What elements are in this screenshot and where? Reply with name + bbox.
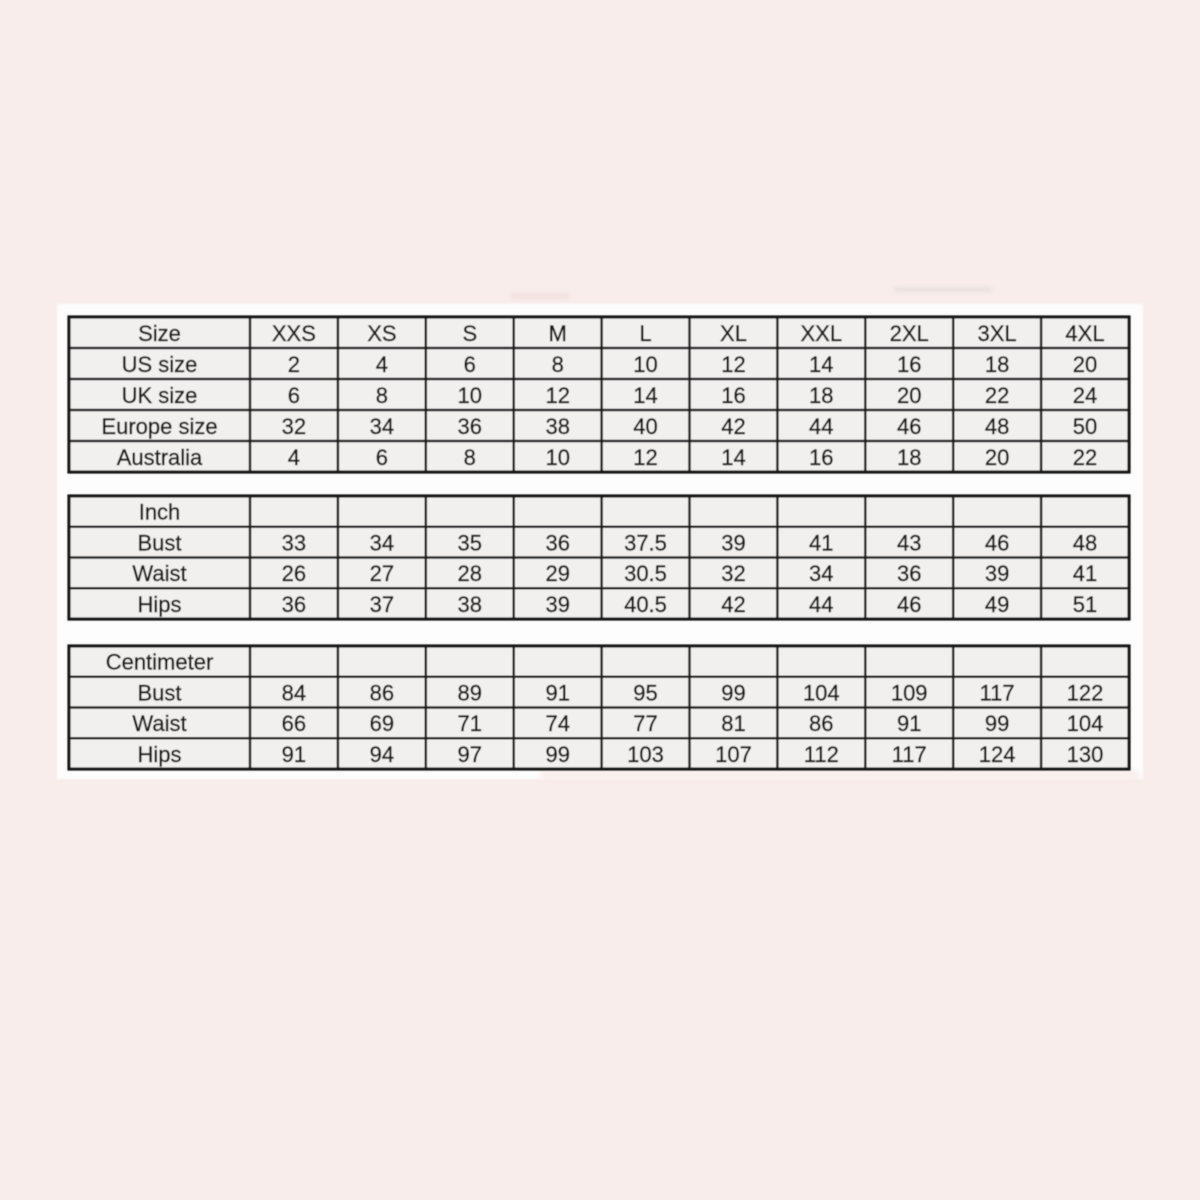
svg-text:86: 86 (370, 680, 394, 705)
svg-text:Inch: Inch (139, 500, 181, 525)
svg-text:48: 48 (1073, 530, 1097, 555)
svg-text:89: 89 (458, 680, 482, 705)
svg-text:12: 12 (721, 352, 745, 377)
svg-text:2XL: 2XL (890, 321, 929, 346)
svg-text:3XL: 3XL (978, 321, 1017, 346)
svg-text:86: 86 (809, 711, 833, 736)
svg-text:94: 94 (370, 742, 394, 767)
svg-text:112: 112 (804, 742, 839, 767)
svg-text:41: 41 (1073, 561, 1097, 586)
svg-text:18: 18 (809, 383, 833, 408)
svg-text:36: 36 (282, 592, 306, 617)
svg-text:124: 124 (979, 742, 1016, 767)
svg-text:34: 34 (809, 561, 833, 586)
svg-text:XXL: XXL (801, 321, 843, 346)
svg-text:S: S (462, 321, 477, 346)
svg-text:36: 36 (545, 530, 569, 555)
svg-text:24: 24 (1073, 383, 1097, 408)
svg-text:Centimeter: Centimeter (106, 650, 214, 675)
svg-text:71: 71 (458, 711, 482, 736)
svg-text:104: 104 (1067, 711, 1104, 736)
svg-text:14: 14 (809, 352, 833, 377)
svg-text:Hips: Hips (137, 592, 181, 617)
svg-text:109: 109 (891, 680, 928, 705)
svg-text:42: 42 (721, 592, 745, 617)
svg-text:38: 38 (545, 414, 569, 439)
svg-text:122: 122 (1067, 680, 1104, 705)
svg-text:40.5: 40.5 (624, 592, 667, 617)
svg-text:4XL: 4XL (1065, 321, 1104, 346)
svg-text:35: 35 (458, 530, 482, 555)
svg-text:103: 103 (627, 742, 664, 767)
svg-text:39: 39 (721, 530, 745, 555)
svg-text:16: 16 (721, 383, 745, 408)
svg-text:27: 27 (370, 561, 394, 586)
svg-text:26: 26 (282, 561, 306, 586)
svg-text:18: 18 (985, 352, 1009, 377)
svg-text:L: L (639, 321, 651, 346)
svg-text:44: 44 (809, 592, 833, 617)
svg-text:107: 107 (715, 742, 752, 767)
svg-text:91: 91 (897, 711, 921, 736)
svg-text:39: 39 (985, 561, 1009, 586)
svg-text:99: 99 (545, 742, 569, 767)
svg-text:2: 2 (288, 352, 300, 377)
svg-text:12: 12 (545, 383, 569, 408)
svg-text:117: 117 (892, 742, 927, 767)
svg-text:36: 36 (897, 561, 921, 586)
svg-text:49: 49 (985, 592, 1009, 617)
svg-text:32: 32 (721, 561, 745, 586)
svg-text:46: 46 (897, 414, 921, 439)
svg-text:Hips: Hips (137, 742, 181, 767)
svg-text:33: 33 (282, 530, 306, 555)
svg-text:M: M (549, 321, 567, 346)
svg-text:37.5: 37.5 (624, 530, 667, 555)
svg-text:50: 50 (1073, 414, 1097, 439)
svg-text:8: 8 (376, 383, 388, 408)
svg-text:Bust: Bust (137, 680, 181, 705)
svg-text:12: 12 (633, 445, 657, 470)
svg-text:UK size: UK size (122, 383, 198, 408)
svg-text:91: 91 (282, 742, 306, 767)
svg-text:51: 51 (1073, 592, 1097, 617)
svg-text:66: 66 (282, 711, 306, 736)
svg-text:Size: Size (138, 321, 181, 346)
svg-text:22: 22 (985, 383, 1009, 408)
svg-text:38: 38 (458, 592, 482, 617)
svg-text:69: 69 (370, 711, 394, 736)
svg-text:4: 4 (376, 352, 388, 377)
svg-text:81: 81 (721, 711, 745, 736)
svg-text:43: 43 (897, 530, 921, 555)
svg-text:6: 6 (376, 445, 388, 470)
svg-text:91: 91 (545, 680, 569, 705)
svg-text:16: 16 (809, 445, 833, 470)
svg-text:6: 6 (464, 352, 476, 377)
svg-text:10: 10 (633, 352, 657, 377)
svg-text:36: 36 (458, 414, 482, 439)
svg-text:16: 16 (897, 352, 921, 377)
svg-text:29: 29 (545, 561, 569, 586)
svg-text:41: 41 (809, 530, 833, 555)
svg-text:28: 28 (458, 561, 482, 586)
svg-text:6: 6 (288, 383, 300, 408)
svg-text:Bust: Bust (137, 530, 181, 555)
svg-text:XXS: XXS (272, 321, 316, 346)
svg-text:20: 20 (897, 383, 921, 408)
svg-text:39: 39 (545, 592, 569, 617)
svg-text:14: 14 (721, 445, 745, 470)
svg-text:20: 20 (1073, 352, 1097, 377)
svg-text:30.5: 30.5 (624, 561, 667, 586)
svg-text:37: 37 (370, 592, 394, 617)
svg-text:US size: US size (122, 352, 198, 377)
svg-text:34: 34 (370, 530, 394, 555)
svg-text:97: 97 (458, 742, 482, 767)
svg-text:4: 4 (288, 445, 300, 470)
svg-text:8: 8 (464, 445, 476, 470)
svg-text:117: 117 (980, 680, 1015, 705)
svg-text:42: 42 (721, 414, 745, 439)
svg-text:Waist: Waist (132, 711, 186, 736)
svg-text:8: 8 (552, 352, 564, 377)
svg-text:74: 74 (545, 711, 569, 736)
svg-text:10: 10 (545, 445, 569, 470)
svg-text:XS: XS (367, 321, 396, 346)
svg-text:XL: XL (720, 321, 747, 346)
svg-text:Australia: Australia (117, 445, 203, 470)
svg-text:99: 99 (721, 680, 745, 705)
svg-text:99: 99 (985, 711, 1009, 736)
svg-text:Europe size: Europe size (101, 414, 217, 439)
svg-text:Waist: Waist (132, 561, 186, 586)
svg-text:14: 14 (633, 383, 657, 408)
svg-text:48: 48 (985, 414, 1009, 439)
svg-text:130: 130 (1067, 742, 1104, 767)
svg-text:77: 77 (633, 711, 657, 736)
svg-text:84: 84 (282, 680, 306, 705)
svg-text:10: 10 (458, 383, 482, 408)
svg-text:22: 22 (1073, 445, 1097, 470)
svg-text:20: 20 (985, 445, 1009, 470)
svg-text:34: 34 (370, 414, 394, 439)
svg-text:95: 95 (633, 680, 657, 705)
svg-text:104: 104 (803, 680, 840, 705)
svg-text:32: 32 (282, 414, 306, 439)
svg-text:44: 44 (809, 414, 833, 439)
svg-text:46: 46 (897, 592, 921, 617)
svg-text:18: 18 (897, 445, 921, 470)
svg-text:46: 46 (985, 530, 1009, 555)
svg-text:40: 40 (633, 414, 657, 439)
